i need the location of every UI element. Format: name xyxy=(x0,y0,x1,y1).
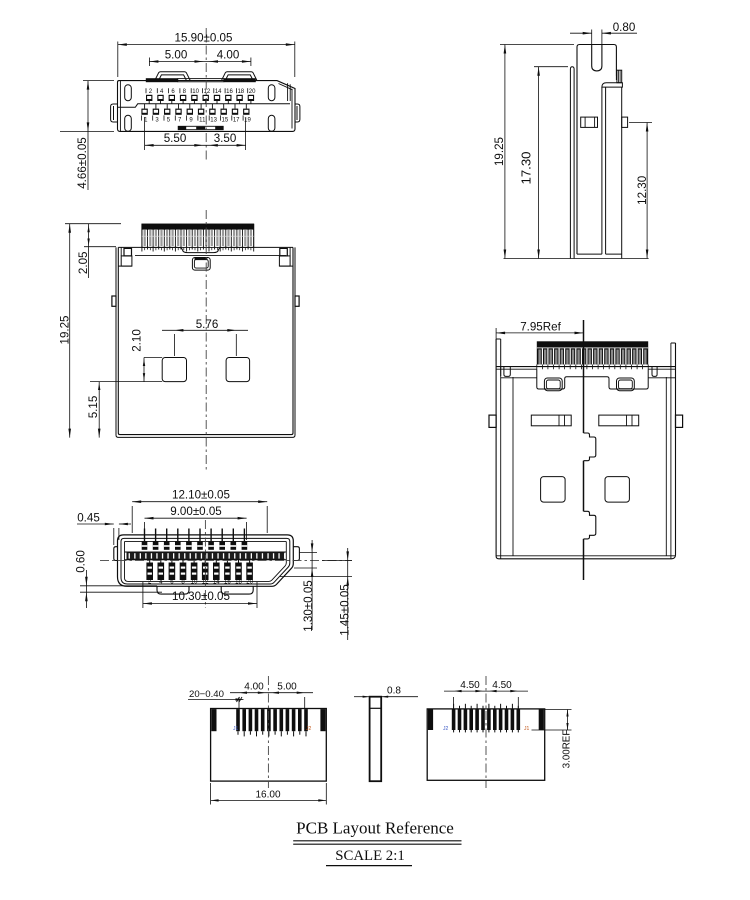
svg-text:8: 8 xyxy=(183,89,187,95)
svg-text:4.66±0.05: 4.66±0.05 xyxy=(76,137,89,189)
svg-text:5.76: 5.76 xyxy=(196,318,219,331)
svg-text:7.95Ref: 7.95Ref xyxy=(520,321,561,334)
svg-text:3.00REF: 3.00REF xyxy=(561,730,572,769)
svg-text:2: 2 xyxy=(149,89,153,95)
svg-text:11: 11 xyxy=(199,118,206,124)
svg-text:6: 6 xyxy=(170,580,174,586)
svg-text:3: 3 xyxy=(155,118,159,124)
svg-text:5.00: 5.00 xyxy=(277,682,297,693)
svg-text:18: 18 xyxy=(237,89,244,95)
svg-text:12: 12 xyxy=(204,89,211,95)
svg-text:5.50: 5.50 xyxy=(164,132,187,145)
svg-text:7: 7 xyxy=(178,118,182,124)
svg-text:4.00: 4.00 xyxy=(217,49,240,62)
svg-text:9: 9 xyxy=(189,118,193,124)
svg-text:15.90±0.05: 15.90±0.05 xyxy=(175,31,233,44)
svg-text:6: 6 xyxy=(171,89,175,95)
svg-text:0.45: 0.45 xyxy=(77,512,100,525)
svg-text:10: 10 xyxy=(191,580,198,586)
svg-text:19.25: 19.25 xyxy=(58,315,71,344)
svg-text:J1: J1 xyxy=(233,726,239,732)
svg-text:PCB Layout Reference: PCB Layout Reference xyxy=(296,819,454,838)
svg-text:20: 20 xyxy=(249,89,256,95)
svg-text:16: 16 xyxy=(226,89,233,95)
svg-text:9.00±0.05: 9.00±0.05 xyxy=(170,505,222,518)
svg-text:4.50: 4.50 xyxy=(460,680,480,691)
svg-text:5.00: 5.00 xyxy=(165,49,188,62)
svg-text:20−0.40: 20−0.40 xyxy=(189,689,224,700)
svg-text:J1: J1 xyxy=(524,726,530,732)
svg-text:10: 10 xyxy=(192,89,199,95)
svg-text:4.00: 4.00 xyxy=(244,682,264,693)
svg-text:17: 17 xyxy=(233,118,240,124)
svg-text:16: 16 xyxy=(224,580,231,586)
svg-text:0.8: 0.8 xyxy=(387,686,401,697)
svg-text:4: 4 xyxy=(159,580,163,586)
svg-text:19.25: 19.25 xyxy=(493,137,506,166)
svg-text:14: 14 xyxy=(213,580,220,586)
svg-text:16.00: 16.00 xyxy=(255,790,280,801)
svg-text:4.50: 4.50 xyxy=(492,680,512,691)
svg-text:14: 14 xyxy=(215,89,222,95)
svg-text:10.30±0.05: 10.30±0.05 xyxy=(172,590,230,603)
svg-text:20: 20 xyxy=(246,580,253,586)
svg-text:15: 15 xyxy=(222,118,229,124)
svg-text:5.15: 5.15 xyxy=(87,396,100,419)
svg-text:12.10±0.05: 12.10±0.05 xyxy=(172,489,230,502)
svg-text:2.10: 2.10 xyxy=(131,329,144,352)
svg-text:0.60: 0.60 xyxy=(75,550,88,573)
svg-text:J2: J2 xyxy=(443,726,449,732)
svg-text:18: 18 xyxy=(235,580,242,586)
svg-text:2: 2 xyxy=(148,580,152,586)
svg-text:13: 13 xyxy=(210,118,217,124)
svg-text:3.50: 3.50 xyxy=(214,132,237,145)
svg-text:SCALE 2:1: SCALE 2:1 xyxy=(335,848,404,864)
svg-text:4: 4 xyxy=(160,89,164,95)
svg-text:17.30: 17.30 xyxy=(519,151,534,184)
svg-text:1.45±0.05: 1.45±0.05 xyxy=(338,584,351,636)
svg-text:12.30: 12.30 xyxy=(636,176,649,205)
svg-text:2.05: 2.05 xyxy=(77,252,90,275)
svg-text:8: 8 xyxy=(181,580,185,586)
svg-text:J2: J2 xyxy=(306,726,312,732)
svg-text:5: 5 xyxy=(167,118,171,124)
svg-text:1.30±0.05: 1.30±0.05 xyxy=(302,580,315,632)
svg-text:0.80: 0.80 xyxy=(613,21,636,34)
